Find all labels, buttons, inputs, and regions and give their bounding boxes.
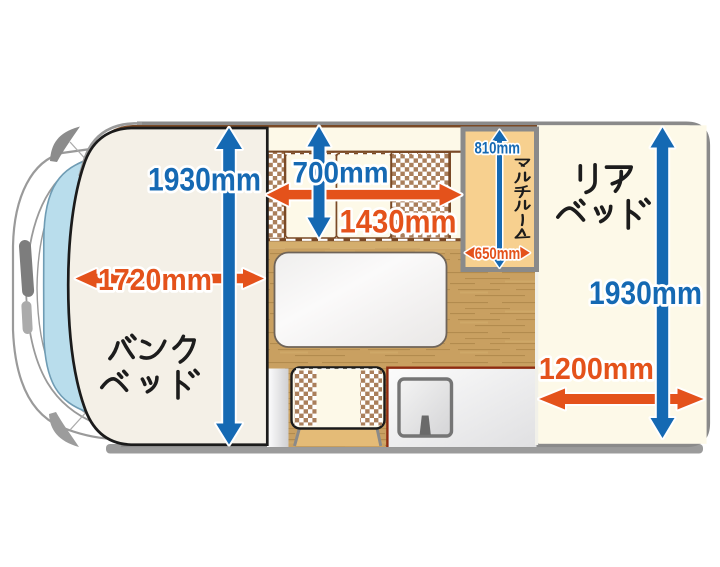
svg-text:1720mm: 1720mm: [98, 262, 212, 297]
svg-text:650mm: 650mm: [475, 245, 521, 263]
svg-text:1930mm: 1930mm: [589, 275, 702, 311]
svg-text:810mm: 810mm: [474, 140, 520, 158]
svg-text:1200mm: 1200mm: [539, 351, 654, 386]
svg-text:1430mm: 1430mm: [340, 204, 457, 240]
svg-text:700mm: 700mm: [293, 157, 389, 190]
svg-text:1930mm: 1930mm: [148, 162, 261, 198]
